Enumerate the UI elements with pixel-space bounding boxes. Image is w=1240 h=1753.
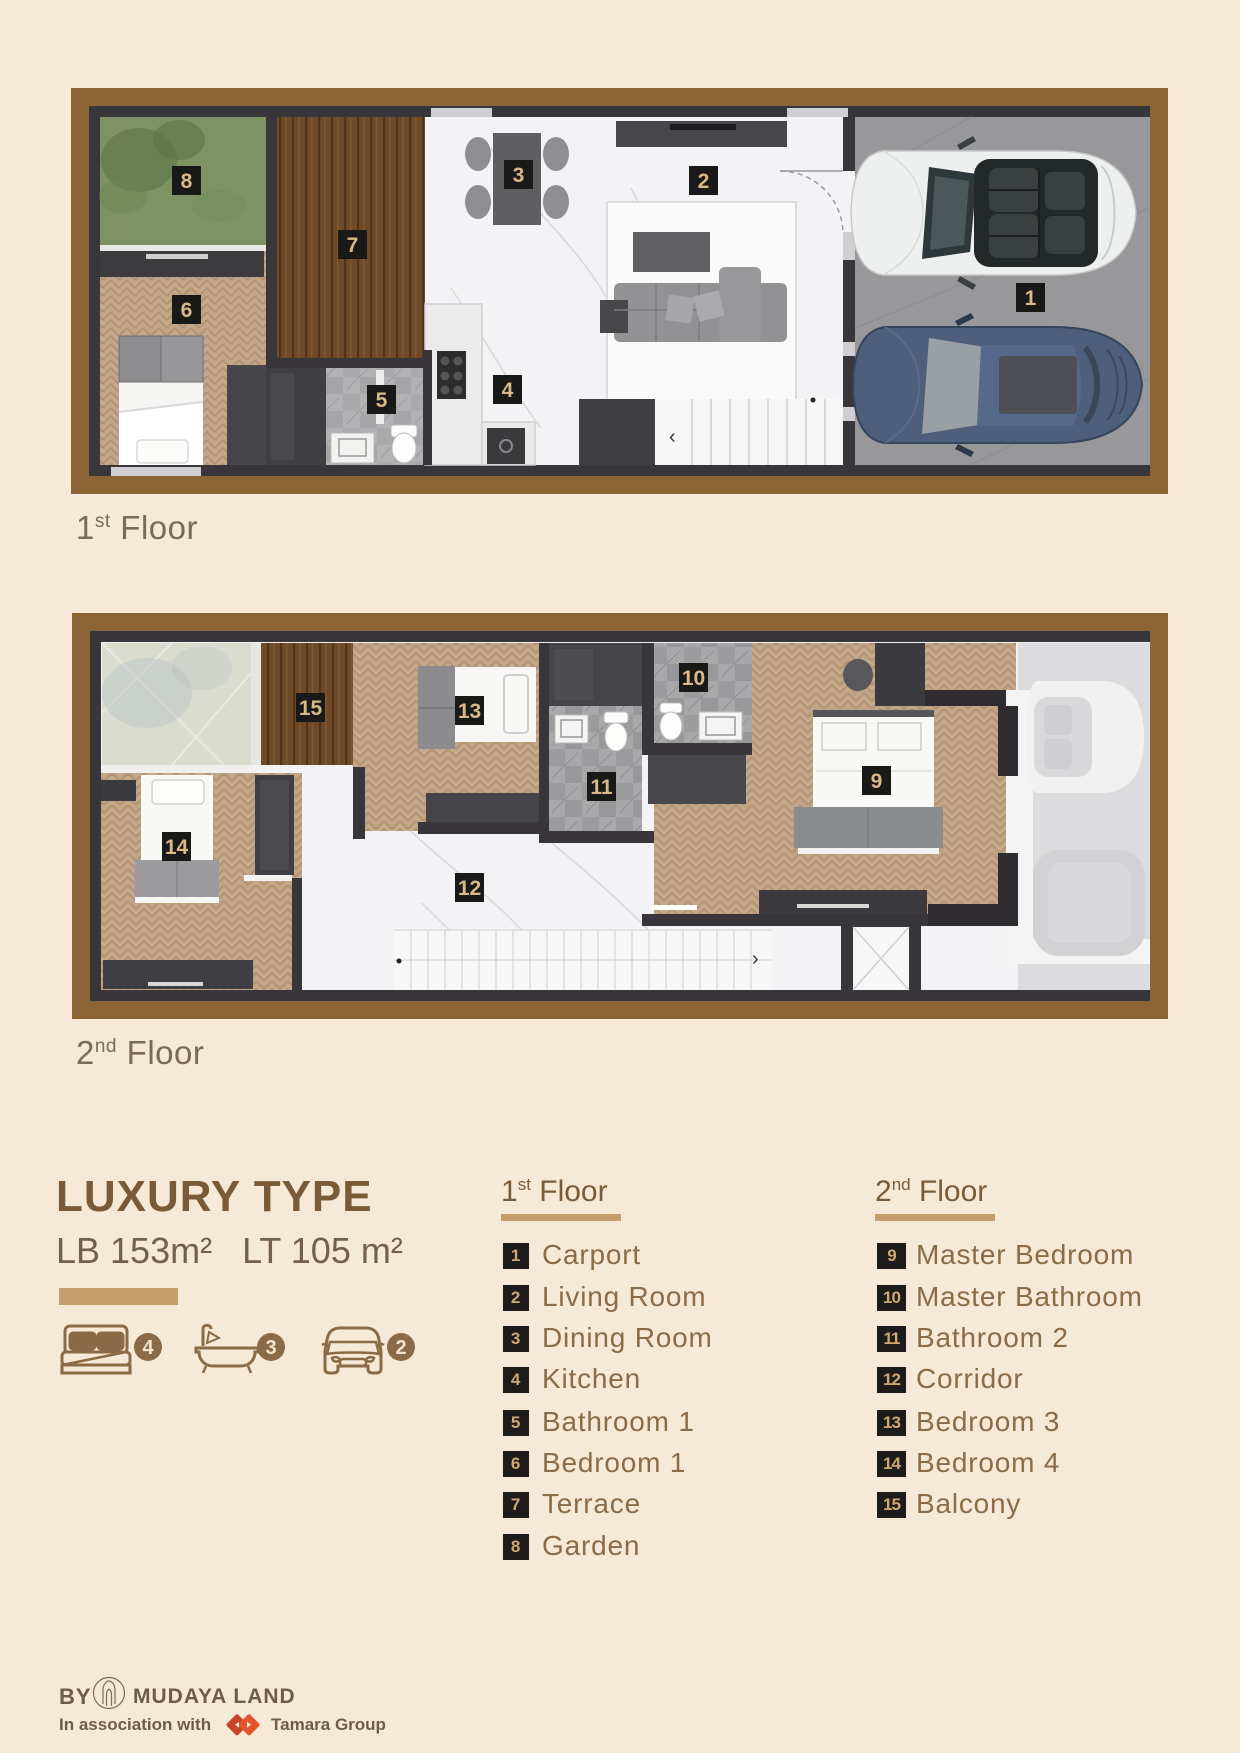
svg-text:‹: ‹ [669, 426, 676, 448]
svg-text:12: 12 [458, 877, 481, 900]
svg-text:15: 15 [299, 697, 323, 720]
svg-text:6: 6 [181, 299, 193, 322]
svg-text:2: 2 [395, 1337, 406, 1359]
svg-text:2: 2 [698, 170, 710, 193]
svg-text:3: 3 [513, 164, 525, 187]
svg-text:›: › [752, 948, 759, 970]
svg-text:4: 4 [502, 379, 514, 402]
svg-text:9: 9 [871, 770, 883, 793]
svg-text:13: 13 [458, 700, 481, 723]
svg-text:11: 11 [590, 776, 613, 799]
svg-text:8: 8 [181, 170, 193, 193]
svg-text:4: 4 [142, 1337, 154, 1359]
svg-text:5: 5 [376, 389, 388, 412]
svg-text:10: 10 [682, 667, 705, 690]
svg-text:14: 14 [165, 836, 189, 859]
svg-text:7: 7 [347, 234, 359, 257]
svg-text:3: 3 [265, 1337, 276, 1359]
svg-text:1: 1 [1025, 287, 1037, 310]
